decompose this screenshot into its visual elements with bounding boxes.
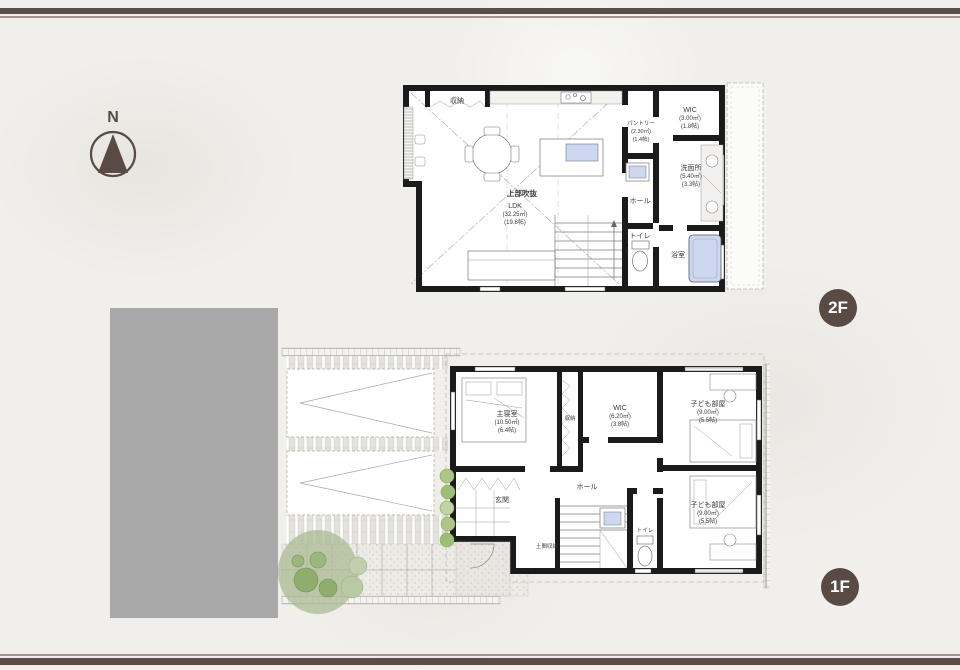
label-2f-hall: ホール <box>630 197 651 205</box>
north-fence <box>282 348 460 356</box>
label-2f-closet: 収納 <box>450 96 464 105</box>
badge-2f: 2F <box>819 289 857 327</box>
parking-space-2 <box>287 451 434 515</box>
label-1f-master-tatami: (6.4帖) <box>498 426 516 434</box>
floor2-floor <box>403 85 725 292</box>
label-2f-washroom-name: 洗面所 <box>681 163 702 172</box>
label-1f-wic-tatami: (3.8帖) <box>611 420 629 428</box>
floor2-plan: 収納 上部吹抜 LDK (32.25㎡) (19.8帖) パントリー (2.30… <box>395 75 775 305</box>
label-2f-pantry-tatami: (1.4帖) <box>633 135 650 143</box>
north-compass: N <box>83 104 143 180</box>
label-1f-doma: 土間収納 <box>536 542 559 550</box>
label-1f-toilet: トイレ <box>637 528 654 534</box>
bathtub-icon <box>689 235 721 282</box>
floor1-plan: 主寝室 (10.50㎡) (6.4帖) 収納 WIC (6.20㎡) (3.8帖… <box>270 340 770 630</box>
washroom-fixtures <box>701 145 723 221</box>
label-1f-kids1-tatami: (5.5帖) <box>699 416 717 424</box>
label-1f-kids1-area: (9.00㎡) <box>697 408 719 416</box>
label-2f-pantry-area: (2.30㎡) <box>631 127 651 135</box>
toilet-icon-1f <box>637 536 653 566</box>
sink-icon <box>566 144 598 161</box>
label-1f-kids2-tatami: (5.5帖) <box>699 517 717 525</box>
label-2f-bath: 浴室 <box>671 250 685 259</box>
label-1f-wic-name: WIC <box>613 405 627 412</box>
toilet-icon-2f <box>632 241 649 271</box>
gray-building-mask <box>110 308 278 618</box>
floorplan-page: N <box>0 0 960 670</box>
kitchen-island <box>540 139 603 176</box>
entrance-porch <box>456 542 510 596</box>
label-2f-ldk-name: LDK <box>508 203 522 210</box>
master-bed <box>462 378 526 442</box>
label-2f-ldk-area: (32.25㎡) <box>502 210 527 218</box>
bottom-frame-line <box>0 654 960 656</box>
label-2f-void: 上部吹抜 <box>507 188 537 198</box>
label-1f-kids2-name: 子ども部屋 <box>691 500 726 509</box>
label-1f-kids1-name: 子ども部屋 <box>691 399 726 408</box>
label-2f-toilet: トイレ <box>630 233 651 240</box>
label-1f-entrance: 玄関 <box>495 495 509 504</box>
label-2f-wic-name: WIC <box>683 107 697 114</box>
label-2f-ldk-tatami: (19.8帖) <box>504 218 526 226</box>
badge-1f: 1F <box>821 568 859 606</box>
label-1f-wic-area: (6.20㎡) <box>609 412 631 420</box>
compass-n-label: N <box>107 109 119 126</box>
east-fence <box>764 364 770 588</box>
label-1f-kids2-area: (9.00㎡) <box>697 509 719 517</box>
hall-basin-icon-1f <box>600 508 625 528</box>
label-1f-master-name: 主寝室 <box>497 409 518 418</box>
bottom-frame-bar <box>0 658 960 665</box>
label-2f-washroom-tatami: (3.3帖) <box>682 180 700 188</box>
label-1f-hall: ホール <box>577 483 598 491</box>
sofa <box>468 251 555 280</box>
hall-basin-icon <box>626 163 649 181</box>
compass-needle-icon <box>98 134 128 173</box>
label-2f-wic-area: (3.00㎡) <box>679 114 701 122</box>
label-2f-washroom-area: (5.40㎡) <box>680 172 702 180</box>
parking-space-1 <box>287 369 434 437</box>
label-2f-wic-tatami: (1.8帖) <box>681 122 699 130</box>
kitchen-counter <box>490 91 622 104</box>
top-frame-line <box>0 16 960 18</box>
top-frame-bar <box>0 8 960 14</box>
label-2f-pantry-name: パントリー <box>627 120 655 127</box>
label-1f-master-area: (10.50㎡) <box>494 418 519 426</box>
balcony-outline <box>727 83 763 289</box>
label-1f-closet: 収納 <box>564 414 576 422</box>
